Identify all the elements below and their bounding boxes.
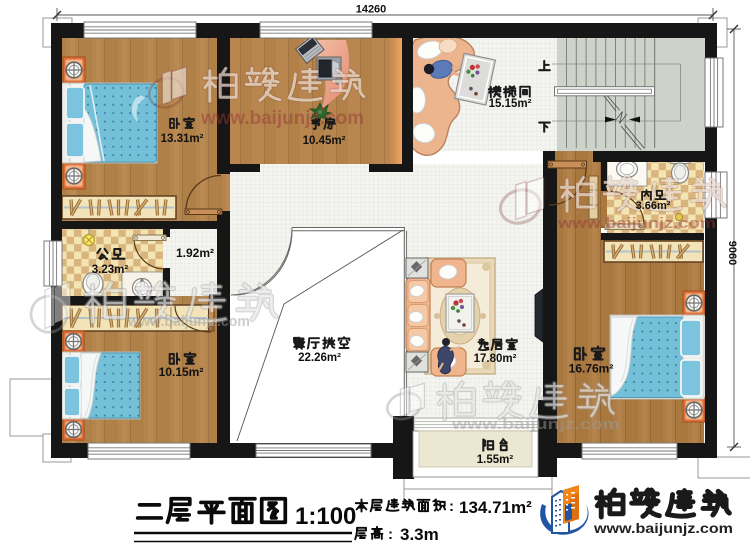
svg-text:1:100: 1:100 [295,503,356,530]
svg-text:10.15m²: 10.15m² [159,365,204,379]
svg-text:14260: 14260 [356,4,387,16]
svg-text:www.baijunjz.com: www.baijunjz.com [451,416,620,433]
svg-text:17.80m²: 17.80m² [474,353,517,365]
svg-text:16.76m²: 16.76m² [569,362,614,376]
svg-text:3.3m: 3.3m [400,525,439,544]
svg-text:www.baijunjz.com: www.baijunjz.com [127,313,250,330]
svg-text:www.baijunjz.com: www.baijunjz.com [200,108,364,129]
svg-text:1.55m²: 1.55m² [477,454,514,466]
svg-text:3.66m²: 3.66m² [636,200,671,212]
svg-text:10.45m²: 10.45m² [303,135,346,147]
svg-text:15.15m²: 15.15m² [489,98,532,110]
svg-text::: : [449,498,454,515]
svg-text:9060: 9060 [726,241,738,265]
svg-text:13.31m²: 13.31m² [161,133,204,145]
svg-text:3.23m²: 3.23m² [92,264,129,276]
svg-text::: : [388,526,393,543]
svg-text:www.baijunjz.com: www.baijunjz.com [593,521,733,536]
svg-text:134.71m²: 134.71m² [459,498,532,517]
svg-text:1.92m²: 1.92m² [176,246,214,260]
svg-text:www.baijunjz.com: www.baijunjz.com [557,215,716,232]
svg-text:22.26m²: 22.26m² [298,352,341,364]
